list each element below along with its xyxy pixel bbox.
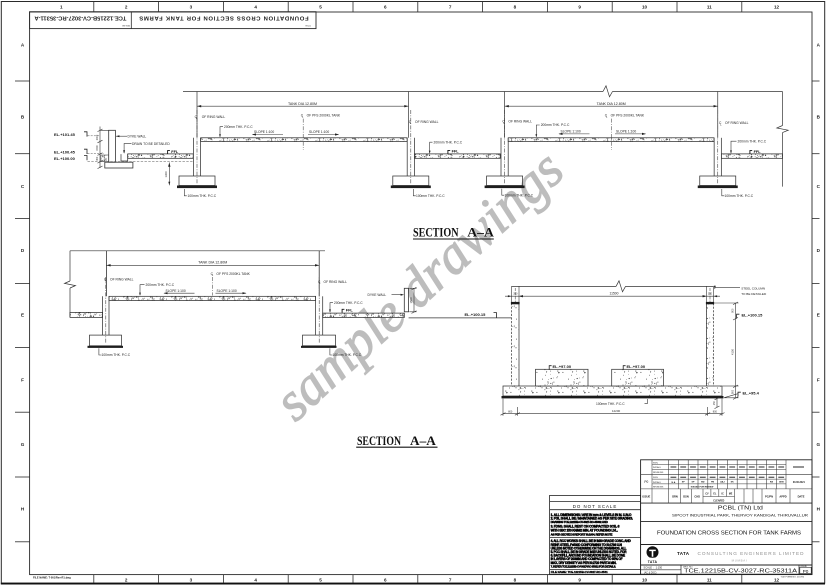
svg-text:D: D [21,248,25,253]
svg-text:DYKE WALL: DYKE WALL [128,134,147,138]
svg-text:A–A: A–A [467,226,494,240]
svg-text:G: G [21,442,25,447]
svg-text:100mm THK. P.C.C: 100mm THK. P.C.C [333,353,362,357]
svg-text:OF RING WALL: OF RING WALL [202,115,226,119]
svg-text:(AC & DSC): (AC & DSC) [644,571,657,574]
svg-text:TCE.12215B-CV-3027-RC-35311A: TCE.12215B-CV-3027-RC-35311A [684,569,798,575]
svg-text:SCALE : 1:150: SCALE : 1:150 [644,566,663,570]
svg-text:L: L [410,121,412,125]
svg-text:REVISIONS: REVISIONS [653,472,664,474]
svg-text:800: 800 [508,410,513,413]
svg-text:SLOPE 1:100: SLOPE 1:100 [217,289,237,293]
svg-text:FOUNDATION CROSS SECTION FOR T: FOUNDATION CROSS SECTION FOR TANK FARMS [657,530,802,536]
svg-text:ISSUE: ISSUE [801,566,808,568]
svg-text:11500: 11500 [610,292,619,296]
svg-text:100mm THK. P.C.C: 100mm THK. P.C.C [102,353,131,357]
svg-text:PCBL (TN) Ltd: PCBL (TN) Ltd [718,505,763,511]
svg-text:6: 6 [384,5,387,10]
svg-text:350: 350 [513,293,518,296]
svg-text:APPD: APPD [779,494,786,498]
svg-text:SLOPE 1:100: SLOPE 1:100 [166,289,186,293]
svg-text:STEEL COLUMN: STEEL COLUMN [741,286,765,290]
svg-text:800: 800 [713,410,718,413]
svg-text:F: F [817,378,820,383]
svg-text:5: 5 [319,578,322,583]
svg-text:FOUNDATION CROSS SECTION FOR T: FOUNDATION CROSS SECTION FOR TANK FARMS [139,15,309,21]
svg-text:1500: 1500 [96,145,99,151]
svg-text:SIGN.: SIGN. [653,477,659,479]
svg-text:IC: IC [722,494,725,496]
svg-text:TO BE DETAILED: TO BE DETAILED [741,292,767,296]
svg-text:SLOPE 1:100: SLOPE 1:100 [254,130,274,134]
svg-text:CHD: CHD [694,494,700,498]
svg-text:FFL: FFL [171,150,179,154]
svg-text:SLOPE 1:100: SLOPE 1:100 [561,130,581,134]
svg-text:8: 8 [514,5,517,10]
svg-text:B: B [817,115,821,120]
svg-text:TCE.12215B-CV-3027-RC-35311-A: TCE.12215B-CV-3027-RC-35311-A [34,15,126,21]
svg-text:TANK DIA 12.80M: TANK DIA 12.80M [288,102,317,106]
svg-text:OF RING WALL: OF RING WALL [415,120,439,124]
svg-text:TCE FORM NO. 001 R2: TCE FORM NO. 001 R2 [781,577,805,579]
svg-text:2000: 2000 [96,134,99,140]
svg-text:200mm THK. P.C.C: 200mm THK. P.C.C [434,140,463,144]
svg-text:FFL: FFL [452,150,460,154]
svg-text:TITLE: TITLE [305,24,311,26]
svg-text:EL.+101.45: EL.+101.45 [54,132,76,137]
svg-text:CV: CV [705,494,709,496]
svg-text:PB: PB [711,482,714,484]
svg-text:FFL: FFL [346,309,354,313]
svg-text:DYKE WALL: DYKE WALL [368,293,387,297]
svg-text:EL.+100.45: EL.+100.45 [54,150,76,155]
svg-text:P0: P0 [644,480,648,484]
svg-text:100mm THK. P.C.C: 100mm THK. P.C.C [505,193,534,197]
svg-text:L: L [212,273,214,277]
svg-text:C: C [817,184,821,189]
svg-text:DRN: DRN [672,494,678,498]
svg-text:3: 3 [190,5,193,10]
svg-text:2: 2 [125,578,128,583]
svg-text:SECTION: SECTION [357,434,402,448]
svg-text:SK: SK [731,482,734,484]
svg-text:150: 150 [713,401,716,406]
svg-text:FFL: FFL [754,150,762,154]
svg-text:A–A: A–A [410,434,437,448]
svg-text:EL: EL [713,494,717,496]
svg-text:DRG NO: DRG NO [122,24,130,26]
svg-text:E: E [817,313,820,318]
svg-text:10: 10 [642,578,648,583]
svg-text:100mm THK. P.C.C: 100mm THK. P.C.C [416,194,445,198]
svg-text:EL.+95.4: EL.+95.4 [743,391,760,396]
svg-text:PC/PN: PC/PN [765,494,773,498]
svg-text:EL.+97.00: EL.+97.00 [627,364,646,369]
svg-text:SP: SP [682,482,685,484]
svg-text:12: 12 [774,578,780,583]
svg-text:10: 10 [642,5,648,10]
svg-text:A: A [817,43,821,48]
svg-text:200mm THK. P.C.C: 200mm THK. P.C.C [146,283,175,287]
svg-text:OF RING WALL: OF RING WALL [110,278,134,282]
svg-text:L: L [606,115,608,119]
svg-text:TANK DIA 12.80M: TANK DIA 12.80M [597,102,626,106]
svg-text:EL.+100.00: EL.+100.00 [54,156,76,161]
svg-text:CONSULTING ENGINEERS LIMITED: CONSULTING ENGINEERS LIMITED [698,551,805,556]
svg-text:DRAIN TO BE DETAILED: DRAIN TO BE DETAILED [132,142,170,146]
svg-text:200mm THK. P.C.C: 200mm THK. P.C.C [334,301,363,305]
svg-text:3: 3 [190,578,193,583]
svg-text:7: 7 [449,5,452,10]
svg-text:L: L [720,122,722,126]
svg-text:REVISIONS: REVISIONS [653,487,664,489]
svg-text:L: L [319,281,321,285]
svg-text:AS PER GEOTECH REPORT IS:1904.: AS PER GEOTECH REPORT IS:1904. REFER NOT… [551,532,613,536]
svg-text:FILE NAME: TCE.12215B-CV-3027: FILE NAME: TCE.12215B-CV-3027-RC-3531 [551,570,608,574]
svg-text:7. REFER TCE.12215B-CV-3027-RC: 7. REFER TCE.12215B-CV-3027-RC-35312 FOR… [551,564,617,568]
svg-text:4: 4 [254,578,257,583]
svg-text:INITIALS: INITIALS [653,466,661,469]
svg-text:EL.+97.00: EL.+97.00 [553,364,572,369]
svg-text:MD: MD [701,482,705,484]
svg-text:SLOPE 1:100: SLOPE 1:100 [616,130,636,134]
svg-text:CLEARED: CLEARED [713,500,724,503]
svg-text:MUMBAI: MUMBAI [732,559,748,563]
svg-text:L: L [504,121,506,125]
svg-text:SECTION: SECTION [413,226,459,240]
svg-text:ME: ME [729,494,733,496]
svg-text:450: 450 [96,156,99,161]
svg-text:2: 2 [125,5,128,10]
svg-text:GKB: GKB [779,482,784,484]
svg-text:11: 11 [707,5,712,10]
svg-text:100mm THK. P.C.C: 100mm THK. P.C.C [725,194,754,198]
svg-text:800: 800 [732,308,735,313]
svg-text:350: 350 [708,293,713,296]
svg-text:12: 12 [774,5,780,10]
svg-text:OF PFS 2000KL TANK: OF PFS 2000KL TANK [216,272,250,276]
svg-text:1300: 1300 [164,171,168,177]
svg-text:DSN: DSN [683,494,689,498]
svg-text:9: 9 [578,5,581,10]
svg-text:H: H [817,507,821,512]
svg-text:DO NOT SCALE: DO NOT SCALE [573,504,618,509]
svg-text:7: 7 [449,578,452,583]
svg-text:KB: KB [770,482,774,484]
svg-text:DATE: DATE [798,494,805,498]
svg-text:E: E [21,313,24,318]
svg-text:SIGN.: SIGN. [653,462,659,464]
svg-text:1500: 1500 [409,297,413,303]
svg-text:SIPCOT INDUSTRIAL PARK, THERVO: SIPCOT INDUSTRIAL PARK, THERVOY KANDIGAI… [672,512,808,517]
svg-text:5: 5 [319,5,322,10]
svg-text:800: 800 [732,389,735,394]
svg-text:SP: SP [692,482,695,484]
svg-text:EL.+100.15: EL.+100.15 [742,313,764,318]
svg-text:L: L [302,115,304,119]
svg-text:6: 6 [384,578,387,583]
svg-text:11: 11 [707,578,712,583]
svg-text:OF PFS 2000KL TANK: OF PFS 2000KL TANK [307,113,341,117]
svg-text:ISSUE: ISSUE [642,494,650,498]
svg-text:8: 8 [514,578,517,583]
svg-text:ISSUED FOR REVIEW: ISSUED FOR REVIEW [691,487,715,489]
svg-text:AAJ: AAJ [720,481,725,484]
svg-text:EL.+100.15: EL.+100.15 [465,312,487,317]
svg-text:C: C [21,184,25,189]
svg-text:TATA: TATA [648,560,658,564]
svg-text:FILE NAME: T-001/Rev-R1.dwg: FILE NAME: T-001/Rev-R1.dwg [33,575,71,579]
svg-text:L: L [196,116,198,120]
svg-text:TANK DIA 12.80M: TANK DIA 12.80M [198,260,227,264]
svg-text:B: B [21,115,25,120]
svg-text:D: D [817,248,821,253]
svg-text:100mm THK. P.C.C: 100mm THK. P.C.C [596,402,625,406]
svg-text:P0: P0 [803,569,809,574]
svg-text:TATA: TATA [677,551,690,556]
svg-text:100mm THK. P.C.C: 100mm THK. P.C.C [188,194,217,198]
svg-text:OF RING WALL: OF RING WALL [324,280,348,284]
svg-text:H: H [21,507,25,512]
svg-text:N.A: N.A [672,481,676,484]
svg-text:200mm THK. P.C.C: 200mm THK. P.C.C [738,139,767,143]
svg-text:4: 4 [254,5,257,10]
svg-text:OF RING WALL: OF RING WALL [508,120,532,124]
svg-text:30.06.2021: 30.06.2021 [793,481,806,484]
svg-text:9: 9 [578,578,581,583]
svg-text:G: G [817,442,821,447]
svg-text:200mm THK. P.C.C: 200mm THK. P.C.C [541,123,570,127]
svg-text:OF PFS 2000KL TANK: OF PFS 2000KL TANK [611,113,645,117]
svg-text:F: F [21,378,24,383]
svg-text:1: 1 [60,5,63,10]
svg-text:12200: 12200 [612,409,621,413]
svg-text:OF RING WALL: OF RING WALL [725,121,749,125]
svg-text:INITIALS: INITIALS [653,481,661,484]
svg-text:4150: 4150 [731,349,735,355]
svg-text:200mm THK. P.C.C: 200mm THK. P.C.C [224,125,253,129]
svg-text:A: A [21,43,25,48]
svg-text:SLOPE 1:100: SLOPE 1:100 [309,130,329,134]
